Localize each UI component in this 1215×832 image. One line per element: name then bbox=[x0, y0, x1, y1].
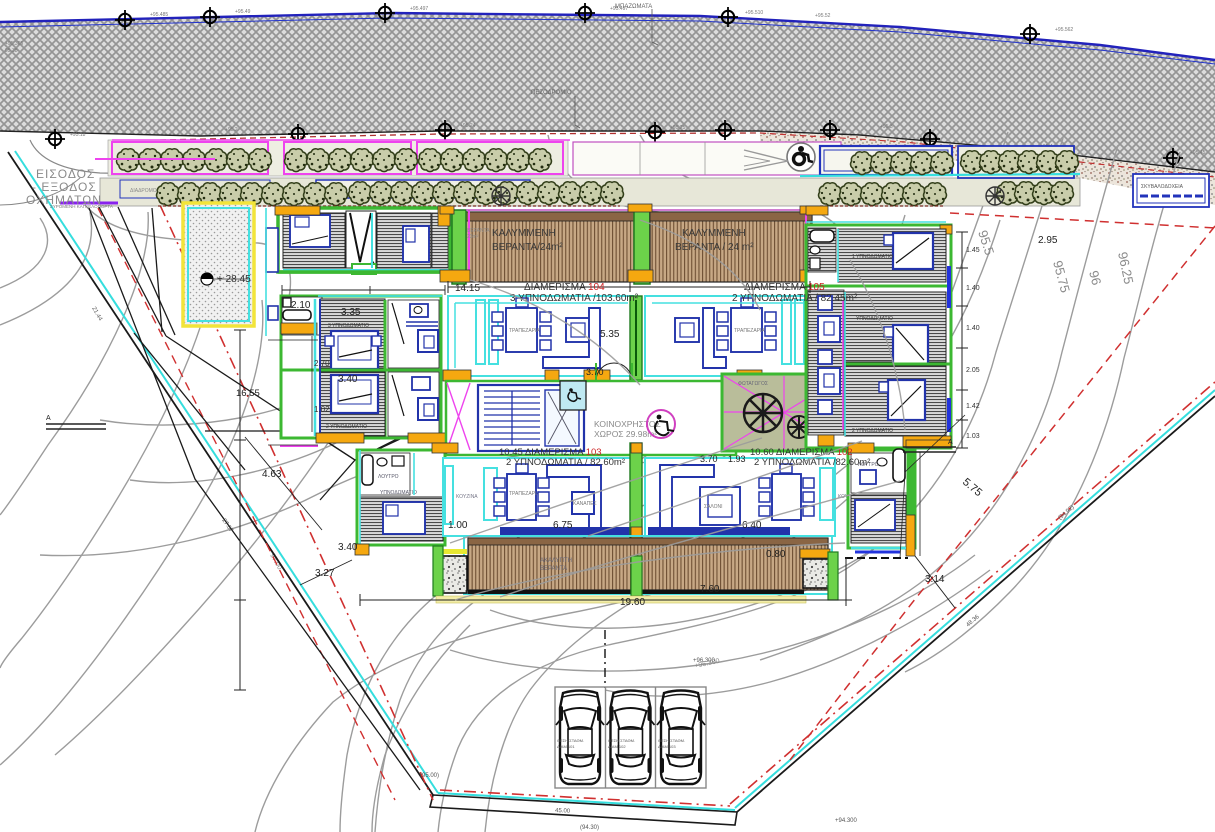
svg-text:ΔΙΑΔΡΟΜΟΣ: ΔΙΑΔΡΟΜΟΣ bbox=[130, 188, 160, 194]
svg-text:ΒΕΡΑΝΤΑ/24m²: ΒΕΡΑΝΤΑ/24m² bbox=[492, 242, 563, 253]
svg-text:+95.45: +95.45 bbox=[1190, 150, 1206, 156]
svg-text:2 ΥΠΝΟΔΩΜΑΤΙΟ: 2 ΥΠΝΟΔΩΜΑΤΙΟ bbox=[852, 428, 893, 434]
svg-text:ΘΕΣΗ ΣΤΑΘΜ.: ΘΕΣΗ ΣΤΑΘΜ. bbox=[658, 738, 685, 743]
svg-text:+96.300: +96.300 bbox=[693, 658, 716, 664]
svg-text:ΤΡΑΠΕΖΑΡΙΑ: ΤΡΑΠΕΖΑΡΙΑ bbox=[509, 328, 540, 334]
svg-text:1.93: 1.93 bbox=[728, 454, 746, 464]
svg-text:3.70: 3.70 bbox=[586, 367, 604, 377]
svg-text:(94.30): (94.30) bbox=[580, 825, 599, 831]
svg-text:1.00: 1.00 bbox=[448, 520, 468, 531]
svg-text:+95.497: +95.497 bbox=[410, 6, 428, 12]
svg-text:0.80: 0.80 bbox=[766, 549, 786, 560]
svg-text:ΔΙΑΜΕΡΙΣΜΑ 104: ΔΙΑΜΕΡΙΣΜΑ 104 bbox=[524, 282, 605, 293]
svg-text:ΠΕΖΟΔΡΟΜΙΟ: ΠΕΖΟΔΡΟΜΙΟ bbox=[531, 90, 572, 96]
svg-text:+95.510: +95.510 bbox=[745, 10, 763, 16]
svg-text:ΣΑΛΟΝΙ: ΣΑΛΟΝΙ bbox=[704, 504, 723, 510]
svg-text:95.38: 95.38 bbox=[5, 48, 18, 54]
svg-text:2.10: 2.10 bbox=[291, 300, 311, 311]
svg-text:1.02: 1.02 bbox=[314, 405, 330, 414]
svg-text:2 ΥΠΝΟΔΩΜΑΤΙΟ: 2 ΥΠΝΟΔΩΜΑΤΙΟ bbox=[326, 424, 367, 430]
svg-text:3.35: 3.35 bbox=[341, 307, 361, 318]
svg-text:14.15: 14.15 bbox=[455, 283, 480, 294]
svg-text:ΚΟΙΝΟΧΡΗΣΤΟΣ: ΚΟΙΝΟΧΡΗΣΤΟΣ bbox=[594, 419, 661, 429]
svg-text:ΒΕΡΑΝΤΑ / 24 m²: ΒΕΡΑΝΤΑ / 24 m² bbox=[675, 242, 754, 253]
svg-text:ΥΠΝΟΔΩΜΑΤΙΟ: ΥΠΝΟΔΩΜΑΤΙΟ bbox=[380, 490, 417, 496]
svg-text:+95.49: +95.49 bbox=[235, 9, 251, 15]
svg-text:1.03: 1.03 bbox=[966, 433, 980, 440]
svg-text:3.40: 3.40 bbox=[338, 542, 358, 553]
svg-text:6.75: 6.75 bbox=[553, 520, 573, 531]
svg-text:ΚΟΥΖΙΝΑ: ΚΟΥΖΙΝΑ bbox=[456, 494, 478, 500]
svg-text:ΚΑΛΥΜΜΕΝΗ: ΚΑΛΥΜΜΕΝΗ bbox=[492, 228, 556, 239]
svg-text:+94.300: +94.300 bbox=[835, 818, 858, 824]
svg-text:ΣΚΥΒΑΛΟΔΟΧΕΙΑ: ΣΚΥΒΑΛΟΔΟΧΕΙΑ bbox=[1141, 184, 1184, 190]
svg-text:+95.3: +95.3 bbox=[880, 124, 893, 130]
svg-text:- ΕΞΟΔΟΣ: - ΕΞΟΔΟΣ bbox=[32, 180, 97, 194]
svg-text:1.40: 1.40 bbox=[966, 325, 980, 332]
svg-text:ΘΕΣΗ ΣΤΑΘΜ.: ΘΕΣΗ ΣΤΑΘΜ. bbox=[608, 738, 635, 743]
svg-text:16.55: 16.55 bbox=[236, 388, 260, 399]
svg-text:A: A bbox=[46, 415, 51, 422]
svg-text:ΤΡΑΠΕΖΑΡΙΑ: ΤΡΑΠΕΖΑΡΙΑ bbox=[734, 328, 765, 334]
svg-text:ΕΙΣΟΔΟΣ: ΕΙΣΟΔΟΣ bbox=[36, 167, 95, 181]
svg-text:3 ΥΠΝΟΔΩΜΑΤΙΟ: 3 ΥΠΝΟΔΩΜΑΤΙΟ bbox=[328, 323, 369, 329]
svg-text:+95.25: +95.25 bbox=[670, 125, 686, 131]
svg-text:1.40: 1.40 bbox=[966, 285, 980, 292]
svg-text:19.60: 19.60 bbox=[620, 597, 645, 608]
svg-text:1.45: 1.45 bbox=[966, 247, 980, 254]
svg-text:ΤΡΑΠΕΖΑΡΙΑ: ΤΡΑΠΕΖΑΡΙΑ bbox=[509, 491, 540, 497]
svg-text:ΔΙΑΜΕΡΙΣΜΑ 105: ΔΙΑΜΕΡΙΣΜΑ 105 bbox=[744, 282, 825, 293]
svg-text:ΔΙΑΜ.102: ΔΙΑΜ.102 bbox=[608, 744, 626, 749]
svg-text:ΔΙΑΜ.103: ΔΙΑΜ.103 bbox=[658, 744, 676, 749]
svg-text:23m²: 23m² bbox=[467, 234, 479, 240]
svg-text:2.05: 2.05 bbox=[966, 367, 980, 374]
svg-text:7.60: 7.60 bbox=[700, 584, 720, 595]
svg-text:ΒΕΡΑΝΤΑ: ΒΕΡΑΝΤΑ bbox=[540, 566, 567, 572]
svg-text:+95.562: +95.562 bbox=[1055, 27, 1073, 33]
svg-text:1.42: 1.42 bbox=[966, 403, 980, 410]
svg-text:ΜΠΑΖΩΜΑΤΑ: ΜΠΑΖΩΜΑΤΑ bbox=[615, 4, 652, 10]
svg-text:+95.18: +95.18 bbox=[70, 132, 86, 138]
svg-text:ΚΑΝΑΠΕΣ: ΚΑΝΑΠΕΣ bbox=[573, 501, 597, 507]
svg-text:+95.365: +95.365 bbox=[5, 41, 23, 47]
svg-text:ΘΕΣΗ ΣΤΑΘΜ.: ΘΕΣΗ ΣΤΑΘΜ. bbox=[557, 738, 584, 743]
svg-text:5.35: 5.35 bbox=[600, 329, 620, 340]
svg-text:+95.2: +95.2 bbox=[225, 127, 238, 133]
svg-text:ΛΟΥΤΡΟ: ΛΟΥΤΡΟ bbox=[378, 474, 399, 480]
svg-text:+ 28.45: + 28.45 bbox=[217, 274, 251, 285]
svg-text:ΟΧΗΜΑΤΩΝ: ΟΧΗΜΑΤΩΝ bbox=[26, 193, 102, 207]
svg-text:+95.485: +95.485 bbox=[150, 12, 168, 18]
svg-text:A: A bbox=[948, 439, 953, 446]
svg-text:ΚΑΛΥΜΜΕΝΗ: ΚΑΛΥΜΜΕΝΗ bbox=[682, 228, 746, 239]
svg-text:1 ΥΠΝΟΔΩΜΑΤΙΟ: 1 ΥΠΝΟΔΩΜΑΤΙΟ bbox=[852, 254, 893, 260]
svg-text:(95.00): (95.00) bbox=[420, 773, 439, 779]
svg-text:+95.24: +95.24 bbox=[460, 123, 476, 129]
svg-text:45.00: 45.00 bbox=[555, 808, 571, 815]
svg-text:2.70: 2.70 bbox=[314, 359, 330, 368]
svg-text:ΔΙΑΜ.101: ΔΙΑΜ.101 bbox=[557, 744, 575, 749]
svg-text:ΑΚΑΛΥΠΤΗ: ΑΚΑΛΥΠΤΗ bbox=[540, 558, 572, 564]
svg-text:ΦΩΤΑΓΩΓΟΣ: ΦΩΤΑΓΩΓΟΣ bbox=[738, 381, 768, 387]
svg-text:3.40: 3.40 bbox=[338, 374, 358, 385]
svg-text:2.95: 2.95 bbox=[1038, 235, 1058, 246]
svg-text:+95.52: +95.52 bbox=[815, 13, 831, 19]
svg-text:3.14: 3.14 bbox=[925, 574, 945, 585]
svg-text:2 ΥΠΝΟΔΩΜΑΤΙΑ / 82.60m²: 2 ΥΠΝΟΔΩΜΑΤΙΑ / 82.60m² bbox=[506, 457, 625, 468]
svg-text:ΥΠΝΟΔΩΜΑΤΙΟ: ΥΠΝΟΔΩΜΑΤΙΟ bbox=[856, 316, 893, 322]
